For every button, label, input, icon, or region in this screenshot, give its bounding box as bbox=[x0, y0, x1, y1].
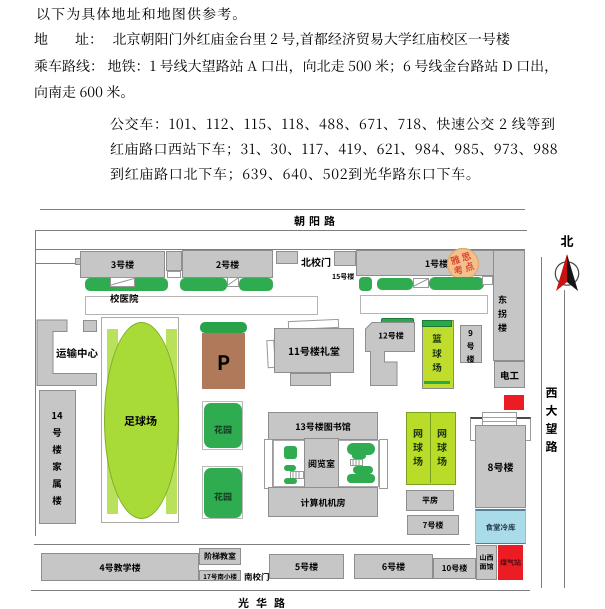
svg-text:12号楼: 12号楼 bbox=[378, 331, 403, 342]
